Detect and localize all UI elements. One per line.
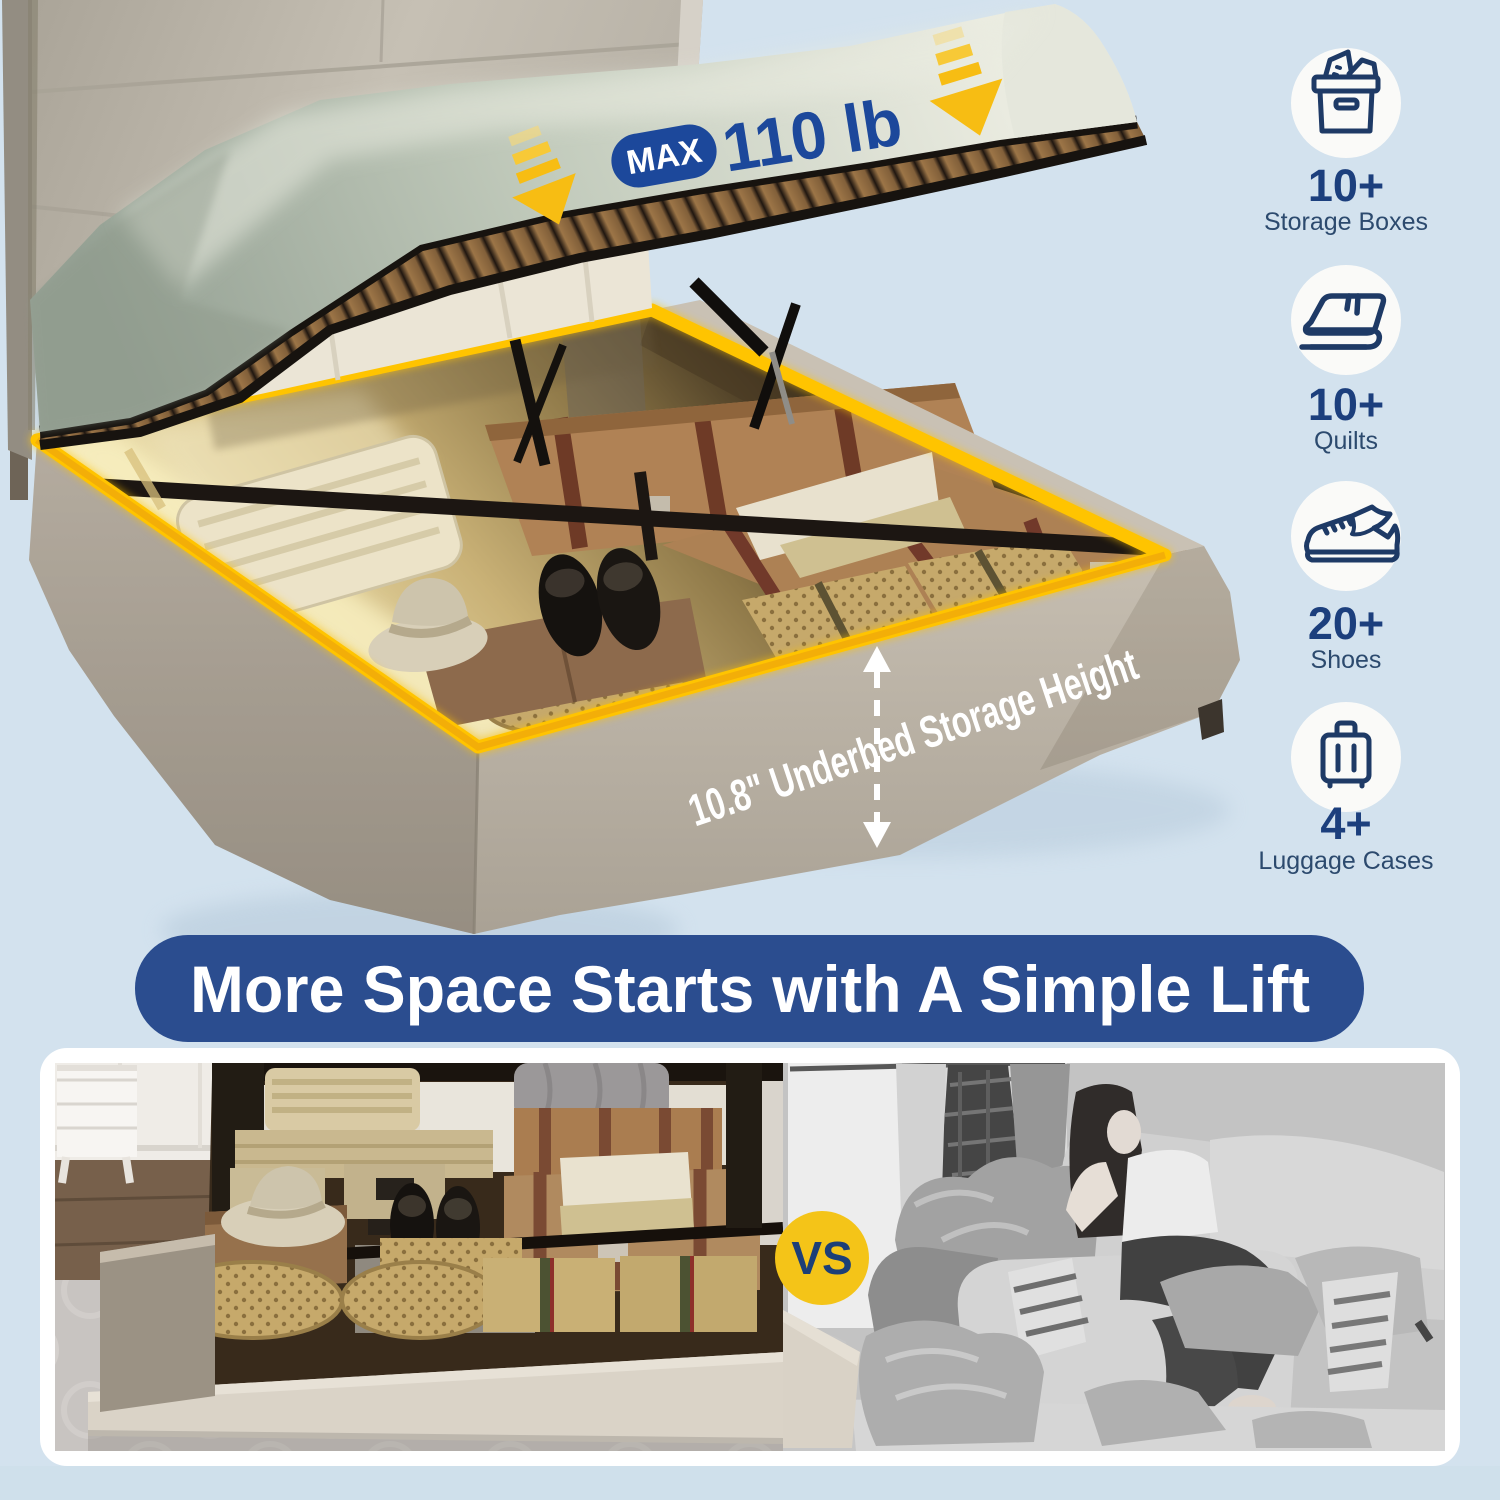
- svg-text:VS: VS: [791, 1232, 852, 1284]
- svg-text:4+: 4+: [1320, 798, 1371, 849]
- svg-text:10+: 10+: [1308, 160, 1384, 211]
- svg-text:Luggage Cases: Luggage Cases: [1258, 847, 1433, 875]
- svg-text:More Space Starts with A Simpl: More Space Starts with A Simple Lift: [190, 952, 1310, 1026]
- svg-text:20+: 20+: [1308, 598, 1384, 649]
- svg-text:Quilts: Quilts: [1314, 427, 1378, 455]
- svg-text:Storage Boxes: Storage Boxes: [1264, 208, 1428, 236]
- svg-text:10+: 10+: [1308, 379, 1384, 430]
- svg-text:Shoes: Shoes: [1311, 646, 1382, 674]
